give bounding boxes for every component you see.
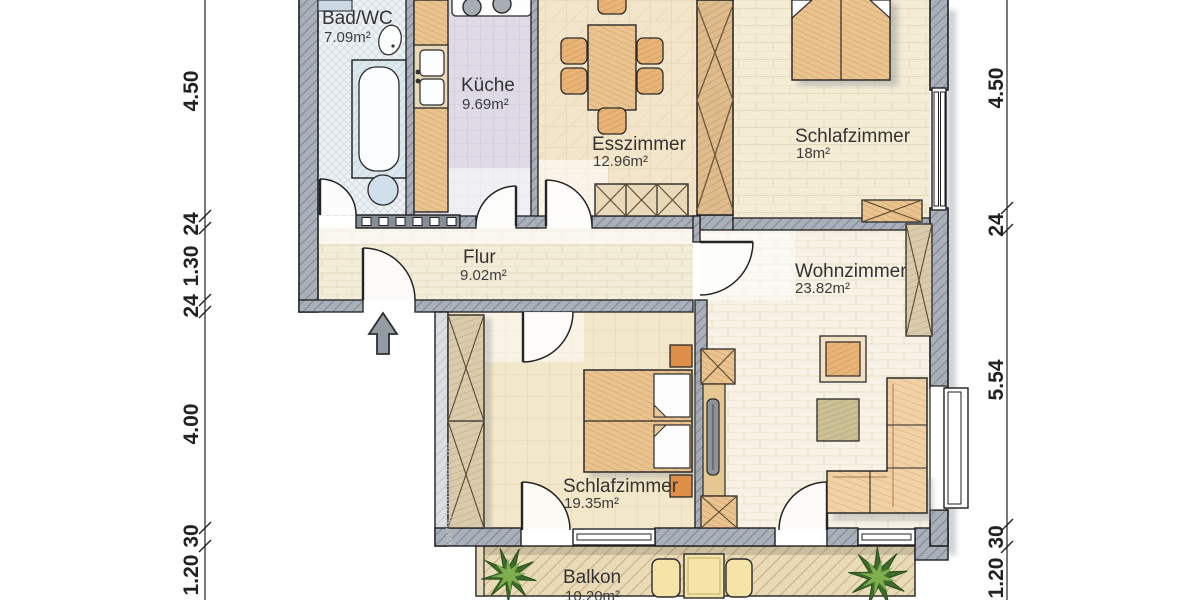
svg-text:Esszimmer: Esszimmer xyxy=(592,134,687,155)
svg-text:19.35m²: 19.35m² xyxy=(564,495,619,512)
svg-text:10.20m²: 10.20m² xyxy=(565,588,620,600)
svg-text:24: 24 xyxy=(985,213,1008,237)
svg-text:9.02m²: 9.02m² xyxy=(460,267,507,284)
svg-text:Küche: Küche xyxy=(461,75,515,96)
svg-text:24: 24 xyxy=(180,294,203,318)
svg-text:Bad/WC: Bad/WC xyxy=(322,8,393,29)
svg-text:4.50: 4.50 xyxy=(985,68,1008,109)
svg-text:Schlafzimmer: Schlafzimmer xyxy=(563,476,679,497)
svg-text:4.50: 4.50 xyxy=(180,71,203,112)
svg-text:Schlafzimmer: Schlafzimmer xyxy=(795,126,911,147)
svg-text:23.82m²: 23.82m² xyxy=(795,280,850,297)
svg-text:24: 24 xyxy=(180,212,203,236)
svg-text:Flur: Flur xyxy=(463,247,496,268)
svg-text:1.20: 1.20 xyxy=(985,558,1008,599)
svg-text:9.69m²: 9.69m² xyxy=(462,96,509,113)
svg-text:4.00: 4.00 xyxy=(180,404,203,445)
svg-text:7.09m²: 7.09m² xyxy=(324,29,371,46)
svg-text:30: 30 xyxy=(985,525,1008,548)
svg-text:12.96m²: 12.96m² xyxy=(593,153,648,170)
svg-text:18m²: 18m² xyxy=(796,145,830,162)
svg-text:1.30: 1.30 xyxy=(180,246,203,287)
svg-text:1.20: 1.20 xyxy=(180,555,203,596)
svg-text:5.54: 5.54 xyxy=(985,359,1008,400)
svg-text:30: 30 xyxy=(180,524,203,547)
svg-text:www.immowelt.de: www.immowelt.de xyxy=(443,442,455,546)
svg-text:Wohnzimmer: Wohnzimmer xyxy=(795,261,907,282)
svg-text:Balkon: Balkon xyxy=(563,567,621,588)
